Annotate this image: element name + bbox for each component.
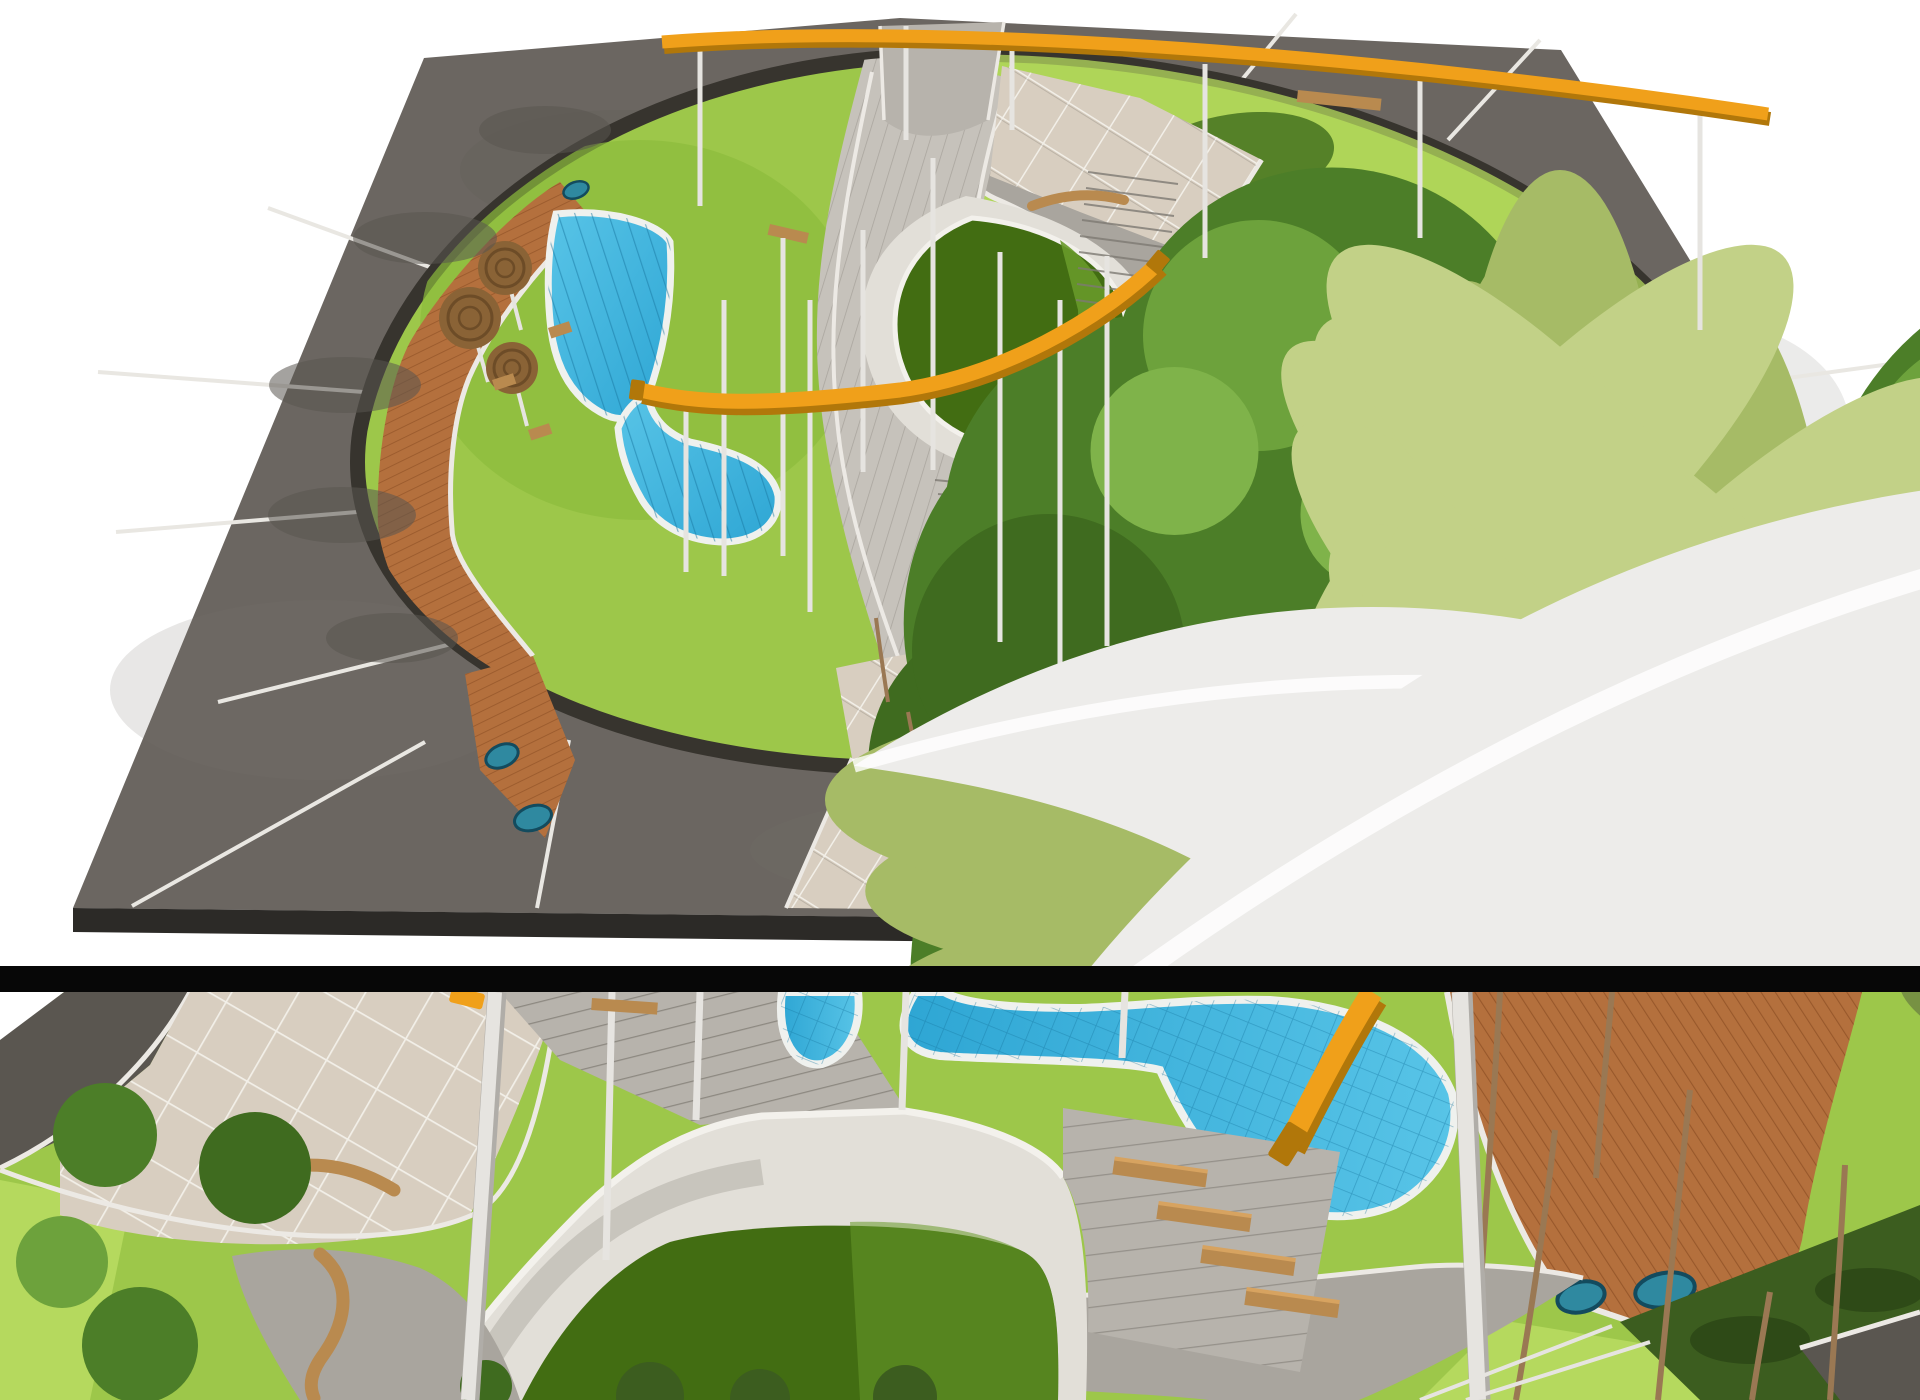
amphitheater [862, 84, 1920, 1400]
central-spine-plaza [833, 60, 1012, 746]
paver-plaza-north [990, 66, 1262, 258]
pebble-pond [511, 801, 555, 836]
paver-plaza-closeup [0, 559, 1920, 1400]
hedge-corner [1620, 1205, 1920, 1400]
palm-shadows [1231, 53, 1920, 1400]
deck-tail [465, 656, 575, 838]
right-loop-path [1020, 140, 1225, 682]
stairs-north [1076, 172, 1178, 312]
sunlit-lawn-right [1420, 1320, 1790, 1400]
pebble-pond [1554, 1277, 1608, 1318]
exit-path-southeast [1155, 602, 1700, 928]
terrace-steps [1063, 1108, 1920, 1400]
stairs-south [935, 480, 1052, 574]
amphitheater-closeup [427, 1073, 1920, 1400]
site-plate [73, 18, 1920, 952]
paver-walkway-south [786, 636, 1252, 910]
pebble-pond [482, 739, 522, 773]
ribbon-sculpture [629, 36, 1770, 408]
lawn-pool-area [420, 140, 860, 520]
scene-svg [0, 0, 1920, 1400]
asphalt-plate [73, 18, 1920, 928]
support-posts [686, 26, 1700, 700]
deck-closeup [1447, 992, 1862, 1368]
road-lines [98, 14, 1920, 926]
base-lawn [0, 992, 1920, 1400]
walkway-north [880, 22, 1004, 136]
wide-stairs [500, 724, 1920, 1400]
palm-trees [749, 170, 1920, 1400]
view-divider-bar [0, 966, 1920, 992]
lawn-trees [1550, 259, 1920, 1400]
cafe-tables [1250, 717, 1920, 1400]
s-benches [252, 1165, 394, 1398]
closeup-posts [468, 992, 1650, 1400]
park-interior [0, 49, 1920, 1400]
lawn-left-sunlit [0, 1180, 130, 1400]
perimeter-trees [268, 106, 1920, 1400]
shade-sails [830, 373, 1920, 1400]
aerial-overview [0, 14, 1920, 1400]
render-canvas [0, 0, 1920, 1400]
curved-benches [1032, 195, 1298, 648]
bg-corner [0, 992, 64, 1040]
park-ring-border [358, 54, 1740, 772]
swimming-pool [548, 213, 778, 542]
terrace-benches [1112, 1156, 1340, 1317]
pebble-pond [1633, 1268, 1698, 1312]
thatch-umbrellas [439, 241, 538, 426]
lawn-bench [591, 998, 658, 1015]
curved-path-right [520, 1220, 1920, 1400]
mound-path-left [232, 1165, 1920, 1400]
wooden-deck [378, 182, 592, 676]
amphitheater-wall [862, 196, 1154, 472]
amphitheater-wall-closeup [427, 1111, 1087, 1400]
closeup-palms [1480, 992, 1920, 1400]
amphitheater-floor [895, 218, 1130, 450]
closeup-view [0, 559, 1920, 1400]
plate-front-edge [73, 908, 1920, 952]
deck-benches [492, 90, 1382, 440]
asphalt-texture [110, 110, 1850, 910]
seating-mounds [1291, 426, 1920, 1400]
lawn-right-sunlit [900, 49, 1745, 774]
pool-closeup [781, 992, 1454, 1216]
amphitheater-floor-closeup [522, 1226, 1058, 1400]
ribbon-closeup [449, 986, 1376, 1167]
asphalt-corner [0, 992, 190, 1168]
closeup-trees [16, 1083, 1920, 1400]
lawn-bench-walls [1769, 724, 1920, 1400]
tree-shadows-lawn [0, 99, 1615, 776]
pebble-pond [561, 178, 591, 202]
